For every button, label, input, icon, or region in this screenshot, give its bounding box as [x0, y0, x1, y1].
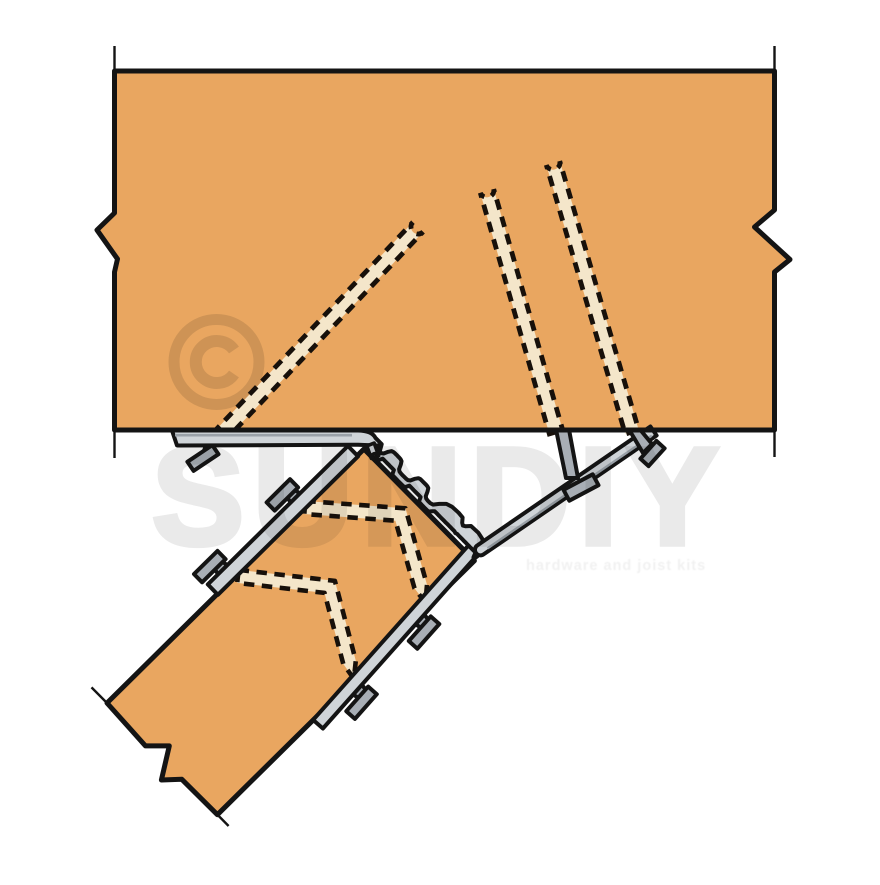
svg-text:hardware and joist kits: hardware and joist kits: [526, 558, 706, 574]
svg-text:SUNDIY: SUNDIY: [152, 420, 727, 574]
